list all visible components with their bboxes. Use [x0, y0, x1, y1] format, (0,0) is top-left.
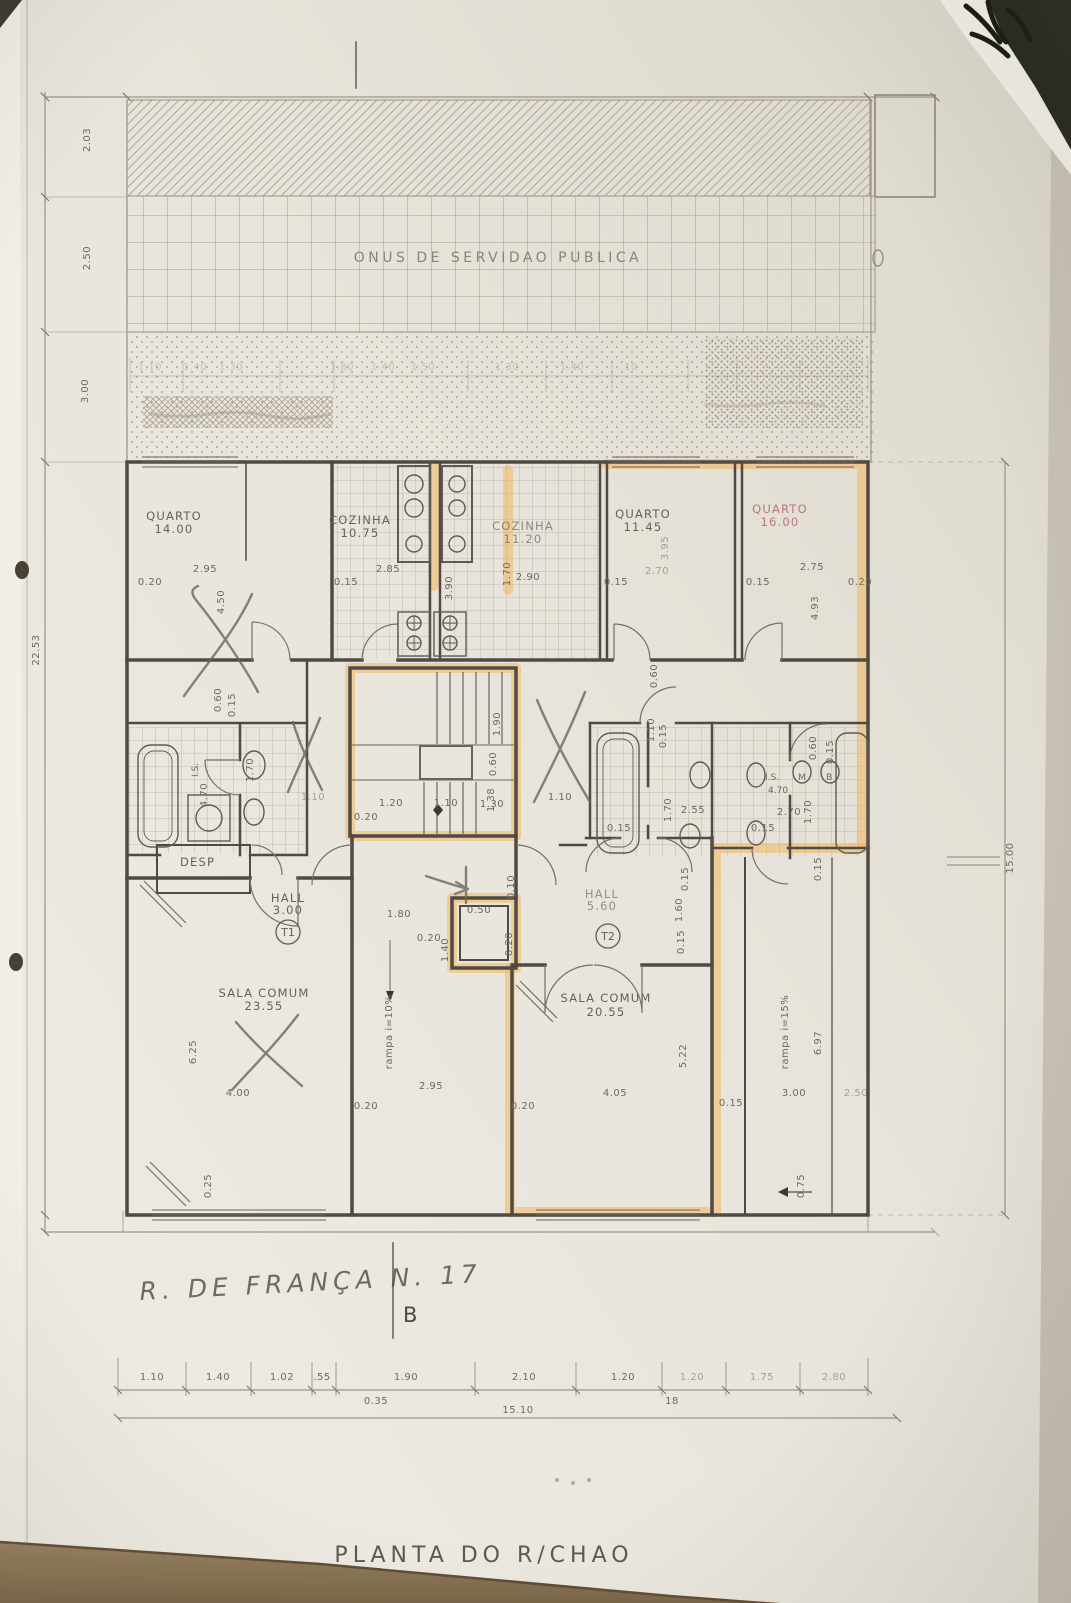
- photo-artifacts: [0, 0, 1071, 1603]
- floor-plan-drawing: ONUS DE SERVIDAO PUBLICA 2.03 2.50 3.00 …: [0, 0, 1071, 1603]
- vignette: [0, 0, 1071, 1603]
- photo-of-floor-plan: { "title": { "text": "PLANTA DO R/CHAO" …: [0, 0, 1071, 1603]
